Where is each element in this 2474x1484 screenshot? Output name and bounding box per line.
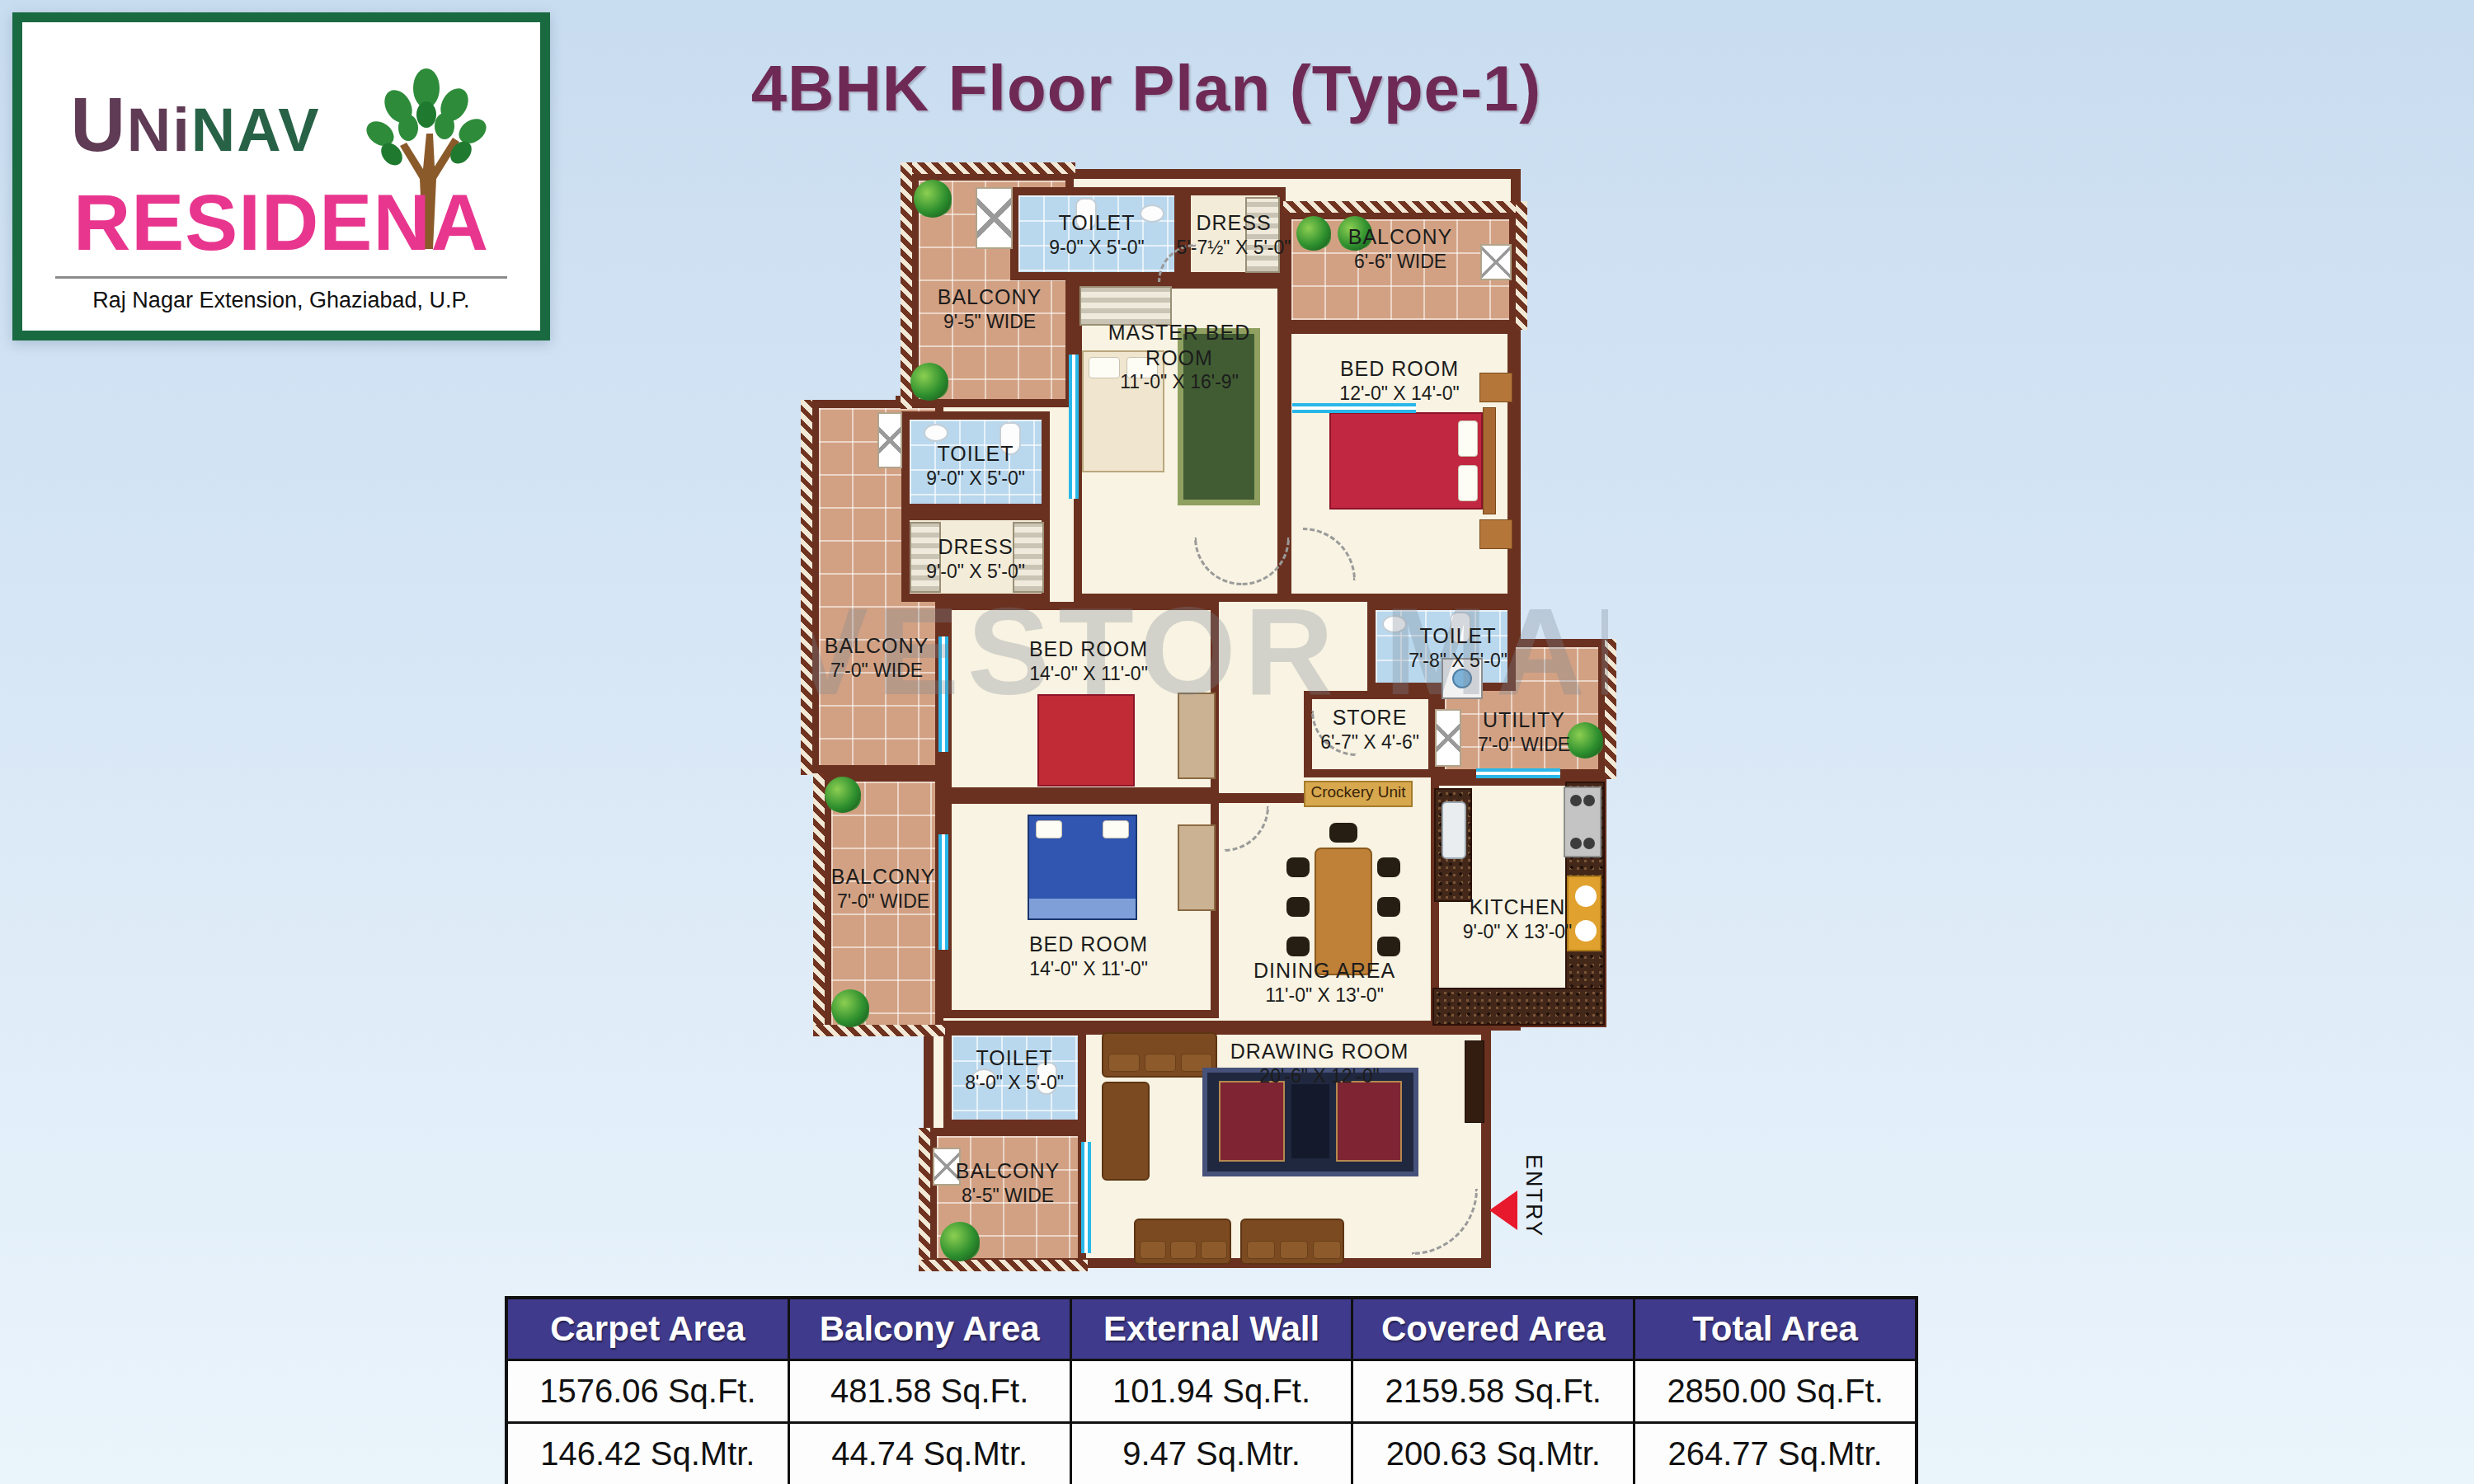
table-cell: 146.42 Sq.Mtr.: [508, 1424, 788, 1484]
bed-red: [1329, 412, 1483, 510]
exterior-wall-hatch: [813, 1025, 945, 1036]
brand-logo: UNiNAV RESID: [12, 12, 550, 340]
entry-arrow-icon: [1489, 1190, 1517, 1230]
exterior-wall-hatch: [901, 162, 1075, 174]
logo-divider: [55, 276, 507, 279]
sofa: [1102, 1082, 1150, 1181]
brand-name-line1: UNiNAV: [22, 82, 369, 168]
brand-address: Raj Nagar Extension, Ghaziabad, U.P.: [22, 288, 540, 313]
table-cell: 481.58 Sq.Ft.: [790, 1361, 1070, 1421]
cabinet: [1178, 824, 1216, 911]
table-cell: 9.47 Sq.Mtr.: [1072, 1424, 1352, 1484]
page: UNiNAV RESID: [0, 0, 2474, 1484]
table-cell: 44.74 Sq.Mtr.: [790, 1424, 1070, 1484]
tv-unit: [1465, 1040, 1484, 1123]
table-cell: 264.77 Sq.Mtr.: [1635, 1424, 1915, 1484]
sofa: [1134, 1219, 1231, 1265]
dining-chair: [1377, 937, 1400, 956]
label-dining: DINING AREA11'-0" X 13'-0": [1225, 958, 1423, 1007]
stove: [1564, 787, 1602, 857]
sofa: [1102, 1032, 1217, 1078]
label-toilet-left: TOILET9'-0" X 5'-0": [877, 441, 1075, 490]
table-cell: 2850.00 Sq.Ft.: [1635, 1361, 1915, 1421]
table-header-covered-area: Covered Area: [1353, 1299, 1633, 1359]
area-table: Carpet Area Balcony Area External Wall C…: [505, 1296, 1918, 1484]
dining-table: [1315, 848, 1372, 975]
kitchen-sink: [1442, 801, 1466, 859]
basin-fixture: [924, 424, 948, 442]
plant-icon: [914, 180, 952, 218]
kitchen-counter-bottom: [1432, 988, 1605, 1026]
table-header-external-wall: External Wall: [1072, 1299, 1352, 1359]
label-bedroom-right: BED ROOM12'-0" X 14'-0": [1300, 356, 1498, 405]
dining-chair: [1286, 937, 1310, 956]
exterior-wall-hatch: [1516, 201, 1527, 330]
label-utility: UTILITY7'-0" WIDE: [1425, 707, 1623, 756]
plant-icon: [910, 363, 948, 401]
label-balcony-left-1: BALCONY7'-0" WIDE: [778, 633, 976, 682]
page-title: 4BHK Floor Plan (Type-1): [742, 51, 1550, 126]
label-balcony-left-2: BALCONY7'-0" WIDE: [784, 864, 982, 913]
label-toilet-bottom: TOILET8'-0" X 5'-0": [915, 1045, 1113, 1094]
exterior-wall-hatch: [919, 1260, 1088, 1271]
dining-chair: [1329, 823, 1357, 843]
label-master-bedroom: MASTER BED ROOM11'-0" X 16'-9": [1080, 320, 1278, 393]
headboard: [1483, 407, 1496, 514]
dining-chair: [1377, 857, 1400, 877]
brand-name-line2: RESIDENA: [45, 177, 517, 268]
table-header-balcony-area: Balcony Area: [790, 1299, 1070, 1359]
label-bedroom-mid: BED ROOM14'-0" X 11'-0": [990, 636, 1188, 685]
window: [1292, 403, 1416, 413]
dining-chair: [1377, 897, 1400, 917]
label-bedroom-lower: BED ROOM14'-0" X 11'-0": [990, 932, 1188, 980]
dining-chair: [1286, 857, 1310, 877]
table-cell: 101.94 Sq.Ft.: [1072, 1361, 1352, 1421]
dining-chair: [1286, 897, 1310, 917]
sofa: [1240, 1219, 1344, 1265]
table-cell: 2159.58 Sq.Ft.: [1353, 1361, 1633, 1421]
plant-icon: [940, 1222, 980, 1261]
label-crockery-unit: Crockery Unit: [1307, 783, 1409, 801]
plant-icon: [831, 989, 869, 1027]
entry-label: ENTRY: [1521, 1154, 1546, 1278]
table-header-total-area: Total Area: [1635, 1299, 1915, 1359]
bed-blue: [1028, 815, 1137, 920]
brand-letter: U: [70, 82, 126, 167]
label-dress-left: DRESS9'-0" X 5'-0": [877, 534, 1075, 583]
label-kitchen: KITCHEN9'-0" X 13'-0": [1418, 895, 1616, 943]
label-balcony-top-right: BALCONY6'-6" WIDE: [1301, 224, 1499, 273]
exterior-wall-hatch: [801, 400, 812, 775]
table-cell: 200.63 Sq.Mtr.: [1353, 1424, 1633, 1484]
table-cell: 1576.06 Sq.Ft.: [508, 1361, 788, 1421]
label-toilet-right: TOILET7'-8" X 5'-0": [1359, 623, 1557, 672]
table-header-carpet-area: Carpet Area: [508, 1299, 788, 1359]
label-drawing-room: DRAWING ROOM20'-6" X 12'-0": [1221, 1039, 1418, 1087]
wall-segment: [1219, 793, 1311, 803]
label-balcony-top-left: BALCONY9'-5" WIDE: [891, 284, 1089, 333]
label-balcony-bottom: BALCONY8'-5" WIDE: [909, 1158, 1107, 1207]
